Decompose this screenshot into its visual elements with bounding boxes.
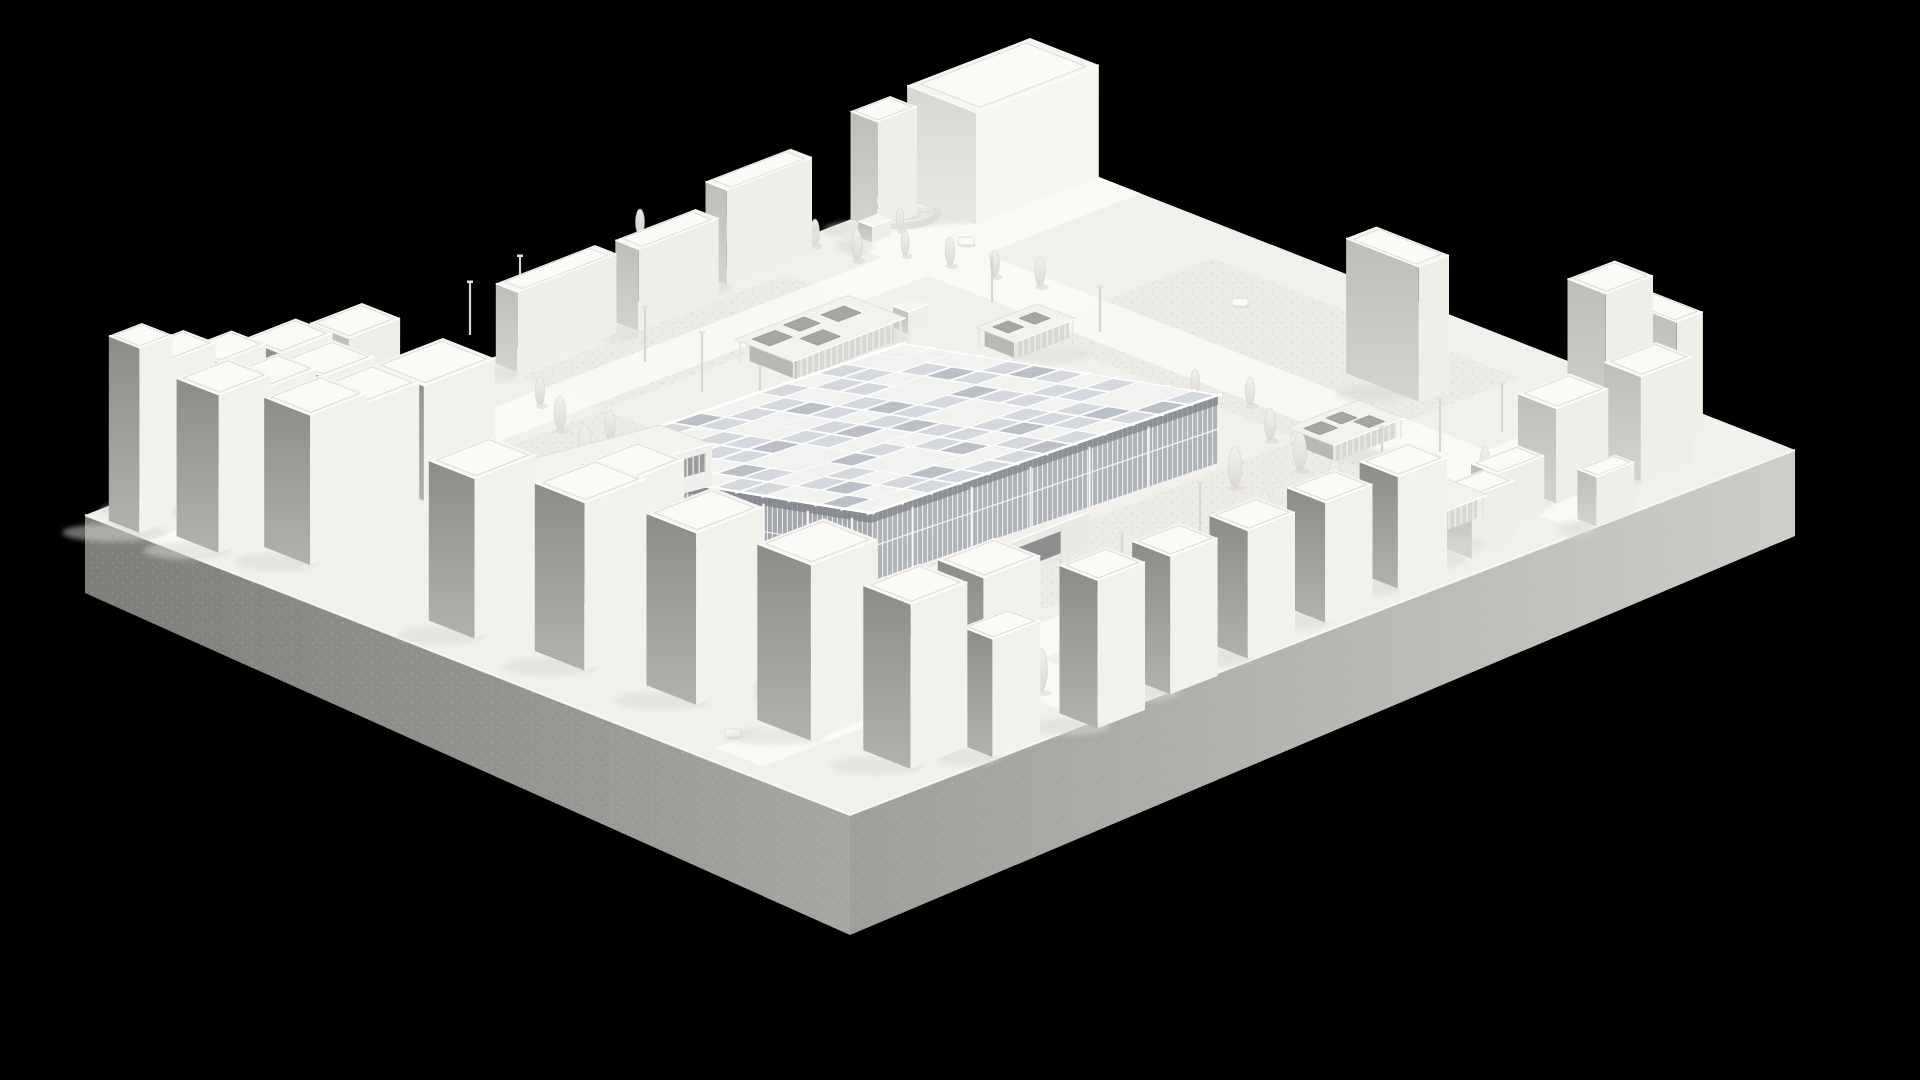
model-photo-canvas — [0, 0, 1920, 1080]
car — [958, 237, 976, 248]
car — [1232, 298, 1250, 309]
architectural-model-photo — [0, 0, 1920, 1080]
